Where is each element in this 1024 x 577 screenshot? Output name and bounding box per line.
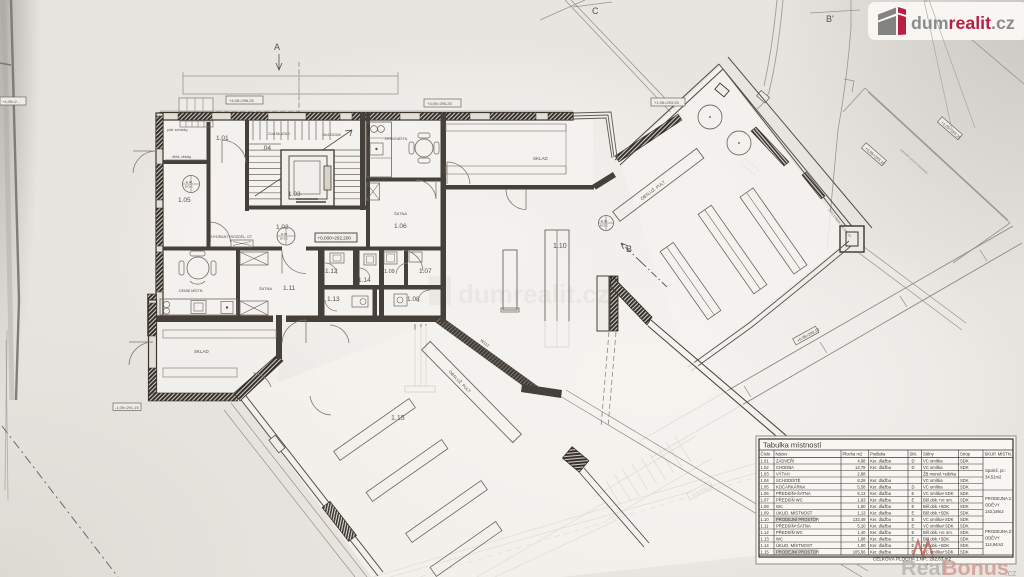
svg-text:Plocha m2: Plocha m2: [843, 452, 863, 457]
svg-text:SKLAD: SKLAD: [194, 349, 210, 354]
svg-text:SDK: SDK: [960, 485, 969, 490]
svg-text:SDK: SDK: [960, 524, 969, 529]
svg-text:DENNÍ MÍSTN.: DENNÍ MÍSTN.: [385, 137, 408, 141]
svg-text:1.15: 1.15: [391, 415, 405, 422]
svg-text:ŠATNA: ŠATNA: [259, 286, 272, 291]
svg-text:1.07: 1.07: [761, 498, 770, 503]
svg-text:1.14: 1.14: [358, 277, 371, 284]
svg-text:Tabulka místností: Tabulka místností: [763, 441, 822, 450]
svg-text:Běl.obk.+vc om.: Běl.obk.+vc om.: [923, 530, 953, 535]
svg-text:CHODBA: CHODBA: [776, 465, 794, 470]
svg-text:D: D: [912, 459, 915, 464]
svg-text:C: C: [592, 6, 599, 16]
svg-text:Ker. dlažba: Ker. dlažba: [870, 465, 892, 470]
svg-text:Bonus: Bonus: [942, 556, 1009, 577]
svg-text:BYS-C: BYS-C: [600, 224, 608, 228]
svg-text:E: E: [912, 530, 915, 535]
svg-text:1,88: 1,88: [857, 537, 866, 542]
svg-text:1.10: 1.10: [761, 517, 770, 522]
svg-text:Ker. dlažba: Ker. dlažba: [870, 511, 892, 516]
svg-text:Ker. dlažba: Ker. dlažba: [870, 478, 892, 483]
svg-text:PRODEJNÍ PROSTOR: PRODEJNÍ PROSTOR: [776, 517, 819, 522]
svg-text:SDK: SDK: [960, 459, 969, 464]
svg-text:PRODEJNA 2:: PRODEJNA 2:: [985, 529, 1012, 534]
svg-text:ŠATNA: ŠATNA: [394, 211, 407, 216]
svg-text:ÚKLID. MÍSTNOST: ÚKLID. MÍSTNOST: [776, 511, 813, 516]
svg-text:34,51m2: 34,51m2: [985, 475, 1002, 480]
svg-text:1,63: 1,63: [857, 498, 866, 503]
svg-text:Ker. dlažba: Ker. dlažba: [870, 550, 892, 555]
svg-text:1.08: 1.08: [761, 504, 770, 509]
svg-text:BYS-C: BYS-C: [185, 185, 193, 189]
svg-text:SDK: SDK: [960, 465, 969, 470]
svg-text:SDK: SDK: [960, 537, 969, 542]
svg-text:1.03: 1.03: [288, 191, 301, 198]
svg-text:ZÁDVEŘÍ: ZÁDVEŘÍ: [776, 459, 795, 464]
svg-text:Ker. dlažba: Ker. dlažba: [870, 491, 892, 496]
svg-text:WC: WC: [776, 504, 783, 509]
svg-text:E: E: [912, 524, 915, 529]
svg-text:VC omítka: VC omítka: [923, 465, 943, 470]
svg-text:1.04: 1.04: [761, 478, 770, 483]
svg-text:E: E: [912, 491, 915, 496]
svg-text:E 30: E 30: [186, 180, 193, 184]
svg-text:SCHODIŠTĚ: SCHODIŠTĚ: [776, 478, 801, 483]
svg-text:143,18m2: 143,18m2: [985, 509, 1004, 514]
svg-text:SM.: SM.: [910, 452, 917, 457]
svg-text:SDK: SDK: [960, 498, 969, 503]
svg-text:SDK: SDK: [960, 543, 969, 548]
svg-text:-1,05=291,15: -1,05=291,15: [115, 405, 139, 410]
svg-text:SDK: SDK: [960, 478, 969, 483]
svg-text:1.05: 1.05: [761, 485, 770, 490]
svg-text:Běl.obk.+SDK: Běl.obk.+SDK: [923, 537, 949, 542]
svg-text:1.06: 1.06: [761, 491, 770, 496]
svg-text:SDK: SDK: [960, 550, 969, 555]
svg-text:1.10: 1.10: [553, 243, 567, 250]
svg-text:PŘEDSÍŇ WC: PŘEDSÍŇ WC: [776, 530, 803, 535]
svg-text:Podlaha: Podlaha: [870, 452, 886, 457]
svg-text:+4,05=296,25: +4,05=296,25: [229, 98, 254, 103]
svg-text:5,58: 5,58: [857, 485, 866, 490]
svg-text:E: E: [912, 537, 915, 542]
svg-text:+4,05=2...: +4,05=2...: [2, 99, 20, 104]
svg-text:dumrealit.cz: dumrealit.cz: [911, 13, 1015, 33]
svg-text:1.01: 1.01: [761, 459, 770, 464]
svg-text:105,56: 105,56: [853, 550, 866, 555]
svg-text:1.03: 1.03: [761, 472, 770, 477]
svg-text:.04: .04: [262, 145, 271, 152]
svg-text:BYS-C: BYS-C: [280, 237, 288, 241]
svg-text:E: E: [912, 511, 915, 516]
svg-text:ODĚVY: ODĚVY: [985, 503, 1000, 508]
svg-text:Běl.obk.+vc om.: Běl.obk.+vc om.: [923, 498, 953, 503]
svg-text:1.02: 1.02: [761, 465, 770, 470]
svg-text:VC omítka+SDK: VC omítka+SDK: [923, 524, 954, 529]
svg-text:+0,000=292,200: +0,000=292,200: [318, 236, 352, 241]
svg-text:PRODEJNA 1:: PRODEJNA 1:: [985, 496, 1012, 501]
svg-text:1.09: 1.09: [384, 269, 395, 275]
svg-text:Ker. dlažba: Ker. dlažba: [870, 530, 892, 535]
svg-text:VÝTAH: VÝTAH: [776, 472, 790, 477]
svg-text:VC omítka+SDK: VC omítka+SDK: [923, 491, 954, 496]
svg-text:PŘEDSÍŇ+ŠATNA: PŘEDSÍŇ+ŠATNA: [776, 491, 811, 496]
svg-text:VC omítka: VC omítka: [923, 478, 943, 483]
svg-text:1.13: 1.13: [761, 537, 770, 542]
svg-text:E: E: [912, 543, 915, 548]
svg-text:SDK: SDK: [960, 511, 969, 516]
svg-text:1.15: 1.15: [761, 550, 770, 555]
svg-text:Strop: Strop: [960, 452, 971, 457]
svg-text:Real: Real: [901, 556, 946, 577]
svg-text:E 30: E 30: [601, 219, 608, 223]
svg-text:E 30: E 30: [281, 232, 288, 236]
svg-text:pošt. schránky: pošt. schránky: [167, 128, 188, 132]
svg-text:VC omítka: VC omítka: [923, 459, 943, 464]
svg-text:Běl.obk.+SDK: Běl.obk.+SDK: [923, 511, 949, 516]
svg-text:114,94m2: 114,94m2: [985, 542, 1004, 547]
svg-text:5,13: 5,13: [857, 491, 866, 496]
svg-text:ODĚVY: ODĚVY: [985, 536, 1000, 541]
svg-text:1,80: 1,80: [857, 504, 866, 509]
svg-text:1.06: 1.06: [394, 223, 407, 230]
svg-text:21x156,8/310: 21x156,8/310: [268, 132, 290, 136]
svg-text:WC: WC: [776, 537, 783, 542]
svg-text:PŘEDSÍŇ WC: PŘEDSÍŇ WC: [776, 498, 803, 503]
svg-text:1.11: 1.11: [761, 524, 770, 529]
svg-text:VC omítka+SDK: VC omítka+SDK: [923, 517, 954, 522]
svg-text:Ker. dlažba: Ker. dlažba: [870, 485, 892, 490]
svg-text:ÚKLID. MÍSTNOST: ÚKLID. MÍSTNOST: [776, 543, 813, 548]
svg-text:Společ. pr.:: Společ. pr.:: [985, 468, 1006, 473]
svg-text:dumrealit.cz: dumrealit.cz: [458, 279, 610, 309]
svg-text:E: E: [912, 504, 915, 509]
svg-text:SKLAD: SKLAD: [533, 156, 549, 161]
svg-text:.cz: .cz: [1005, 568, 1017, 577]
svg-text:D: D: [912, 465, 915, 470]
svg-text:E: E: [912, 498, 915, 503]
svg-text:PŘEDSÍŇ+ŠATNA: PŘEDSÍŇ+ŠATNA: [776, 524, 811, 529]
svg-text:1.12: 1.12: [325, 268, 338, 275]
svg-text:1.14: 1.14: [761, 543, 770, 548]
svg-text:1.05: 1.05: [178, 197, 191, 204]
svg-text:Ker. dlažba: Ker. dlažba: [870, 537, 892, 542]
svg-text:1,00: 1,00: [857, 543, 866, 548]
svg-text:HYDRANT+ROZDĚL. OT: HYDRANT+ROZDĚL. OT: [211, 234, 253, 239]
svg-text:Číslo: Číslo: [761, 452, 771, 457]
svg-text:8,28: 8,28: [857, 478, 866, 483]
svg-text:Ker. dlažba: Ker. dlažba: [870, 524, 892, 529]
svg-text:VC omítka+SDK: VC omítka+SDK: [923, 550, 954, 555]
svg-text:SDK: SDK: [960, 530, 969, 535]
svg-text:E: E: [912, 517, 915, 522]
svg-text:1.13: 1.13: [327, 296, 340, 303]
svg-text:SDK: SDK: [960, 504, 969, 509]
svg-text:SKUP. MÍSTN.: SKUP. MÍSTN.: [985, 452, 1012, 457]
svg-text:5,10: 5,10: [857, 524, 866, 529]
svg-text:1.12: 1.12: [761, 530, 770, 535]
svg-text:1,13: 1,13: [857, 511, 866, 516]
svg-text:2,88: 2,88: [857, 472, 866, 477]
svg-text:1.09: 1.09: [761, 511, 770, 516]
svg-text:ŽB monol.+stěrka: ŽB monol.+stěrka: [923, 472, 957, 477]
svg-text:SDK: SDK: [960, 517, 969, 522]
svg-text:1.11: 1.11: [283, 285, 296, 292]
svg-text:1,40: 1,40: [857, 530, 866, 535]
svg-text:1.07: 1.07: [419, 268, 432, 275]
svg-text:PRODEJNÍ PROSTOR: PRODEJNÍ PROSTOR: [776, 550, 819, 555]
svg-text:+3,05=295,25: +3,05=295,25: [427, 101, 452, 106]
svg-text:+1,05=293,25: +1,05=293,25: [654, 100, 679, 105]
svg-text:133,49: 133,49: [853, 517, 866, 522]
svg-text:vlhké, věšáky: vlhké, věšáky: [172, 155, 192, 159]
svg-text:Ker. dlažba: Ker. dlažba: [870, 459, 892, 464]
svg-text:Název: Název: [776, 452, 789, 457]
svg-text:Ker. dlažba: Ker. dlažba: [870, 517, 892, 522]
svg-text:Běl.obk.+SDK: Běl.obk.+SDK: [923, 504, 949, 509]
svg-text:12,79: 12,79: [855, 465, 866, 470]
svg-text:Ker. dlažba: Ker. dlažba: [870, 498, 892, 503]
svg-text:SDK: SDK: [960, 491, 969, 496]
svg-text:D: D: [912, 485, 915, 490]
svg-text:4,98: 4,98: [857, 459, 866, 464]
svg-text:DENNÍ MÍSTN.: DENNÍ MÍSTN.: [179, 289, 203, 293]
svg-text:Stěny: Stěny: [923, 452, 935, 457]
svg-text:KOČÁRKÁRNA: KOČÁRKÁRNA: [776, 485, 806, 490]
svg-text:16x163/300: 16x163/300: [322, 133, 341, 137]
svg-text:VC omítka: VC omítka: [923, 485, 943, 490]
svg-text:Ker. dlažba: Ker. dlažba: [870, 543, 892, 548]
svg-text:B': B': [826, 14, 834, 24]
svg-text:Ker. dlažba: Ker. dlažba: [870, 504, 892, 509]
svg-text:A: A: [274, 42, 280, 52]
